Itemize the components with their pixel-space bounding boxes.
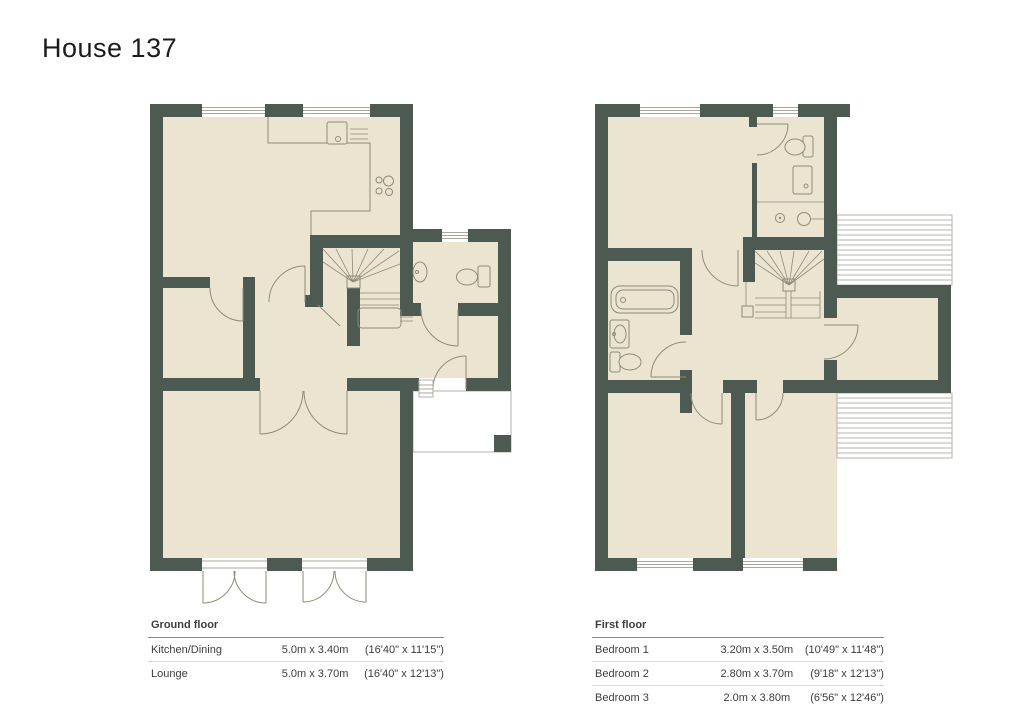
- page-title: House 137: [42, 33, 177, 64]
- ground-floor-table-header: Ground floor: [148, 617, 444, 638]
- first-floor-table: First floor Bedroom 1 3.20m x 3.50m (10'…: [592, 617, 884, 709]
- room-imperial-size: (9'18" x 12'13"): [803, 668, 884, 680]
- room-imperial-size: (6'56" x 12'46"): [803, 692, 884, 704]
- room-imperial-size: (10'49" x 11'48"): [803, 644, 884, 656]
- first-floor-table-header: First floor: [592, 617, 884, 638]
- room-imperial-size: (16'40" x 12'13"): [362, 668, 444, 680]
- room-metric-size: 5.0m x 3.70m: [268, 668, 362, 680]
- gf-entrance-step: [419, 380, 433, 397]
- bathroom-vanity-icon: [610, 320, 629, 348]
- room-metric-size: 2.0m x 3.80m: [711, 692, 803, 704]
- ff-floor-fill: [608, 117, 938, 558]
- room-name: Bedroom 3: [595, 692, 711, 704]
- room-metric-size: 3.20m x 3.50m: [711, 644, 803, 656]
- table-row: Bedroom 1 3.20m x 3.50m (10'49" x 11'48"…: [592, 638, 884, 662]
- table-row: Kitchen/Dining 5.0m x 3.40m (16'40" x 11…: [148, 638, 444, 662]
- room-name: Kitchen/Dining: [151, 644, 268, 656]
- bathroom-toilet-icon: [610, 352, 641, 372]
- room-name: Bedroom 2: [595, 668, 711, 680]
- table-row: Bedroom 2 2.80m x 3.70m (9'18" x 12'13"): [592, 662, 884, 686]
- room-metric-size: 2.80m x 3.70m: [711, 668, 803, 680]
- room-name: Bedroom 1: [595, 644, 711, 656]
- room-metric-size: 5.0m x 3.40m: [268, 644, 362, 656]
- table-row: Bedroom 3 2.0m x 3.80m (6'56" x 12'46"): [592, 686, 884, 709]
- ensuite-vanity-icon: [793, 166, 812, 194]
- gf-porch: [413, 391, 511, 452]
- first-floor-plan: [585, 95, 975, 610]
- room-imperial-size: (16'40" x 11'15"): [362, 644, 444, 656]
- ground-floor-table: Ground floor Kitchen/Dining 5.0m x 3.40m…: [148, 617, 444, 685]
- gf-floor-fill: [163, 117, 498, 558]
- table-row: Lounge 5.0m x 3.70m (16'40" x 12'13"): [148, 662, 444, 685]
- ground-floor-plan: [140, 95, 530, 610]
- bath-icon: [611, 286, 678, 313]
- room-name: Lounge: [151, 668, 268, 680]
- gf-wc-basin-icon: [413, 262, 427, 282]
